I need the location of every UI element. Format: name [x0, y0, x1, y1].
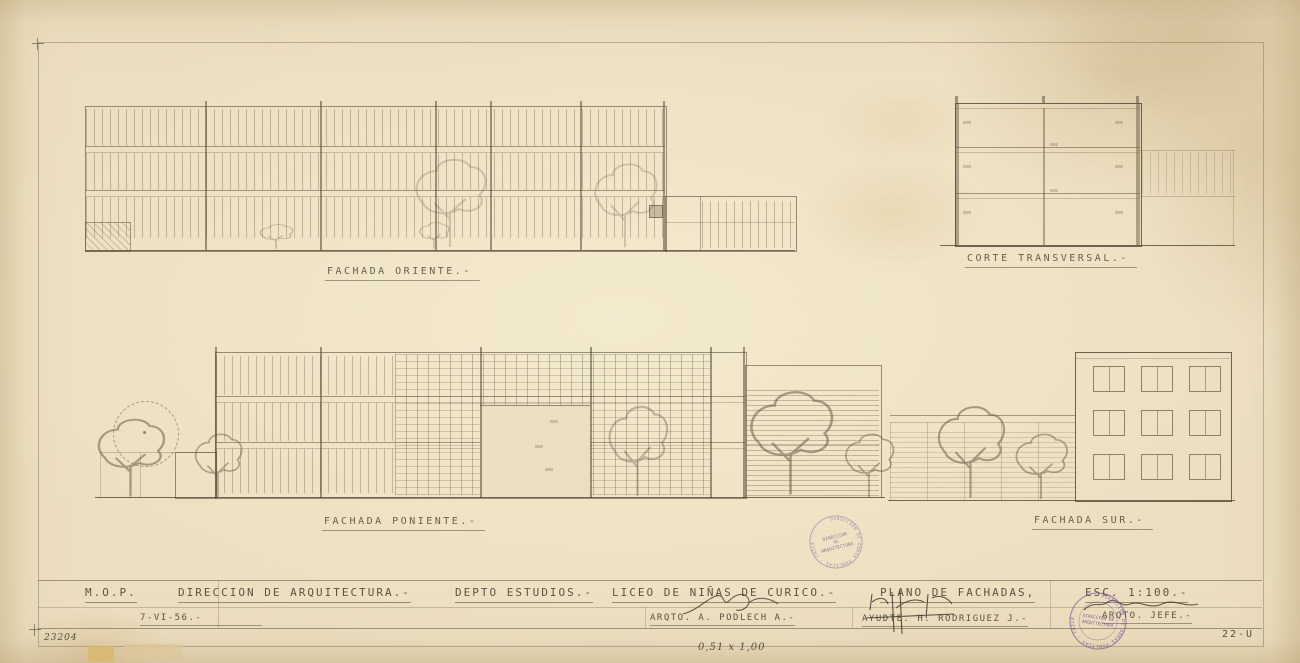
window-band: [86, 197, 664, 238]
dimension-note: [963, 121, 971, 124]
dimension-note: [550, 420, 558, 423]
dimension-note: [1115, 121, 1123, 124]
column-line: [580, 101, 582, 250]
architect-signature: [678, 590, 783, 620]
section-corte-transversal: [955, 103, 1140, 253]
dimension-note: [963, 211, 971, 214]
corte-label: CORTE TRANSVERSAL.-: [965, 253, 1137, 268]
oriente-label: FACHADA ORIENTE.-: [325, 266, 480, 281]
tree-sketch: [1008, 428, 1074, 502]
annex-post: [700, 196, 701, 250]
parapet-stub: [1136, 96, 1139, 103]
org-label: M.O.P.: [85, 586, 137, 603]
title-block-divider: [645, 607, 646, 628]
dimension-note: [1115, 165, 1123, 168]
floor-slab-line: [955, 193, 1140, 194]
tree-sketch: [738, 382, 843, 499]
tape-patch: [88, 646, 115, 663]
window-band: [86, 109, 664, 146]
ground-line: [940, 245, 1235, 246]
sheet-code-note: 22-U: [1222, 629, 1254, 640]
dimension-note: [1115, 211, 1123, 214]
column-line: [590, 347, 592, 498]
drawing-sheet: FACHADA ORIENTE.- CORTE TRANSVERSAL.-: [0, 0, 1300, 663]
adjacent-wing-line: [1140, 196, 1235, 197]
floor-slab-line: [955, 198, 1140, 199]
column-line: [320, 101, 322, 250]
floor-slab-line: [955, 147, 1140, 148]
stamp-graphic: DIRECCION DE OBRAS PUBLICAS · CHILE · DI…: [1054, 585, 1142, 658]
poniente-label: FACHADA PONIENTE.-: [322, 516, 485, 531]
sur-label: FACHADA SUR.-: [1032, 515, 1153, 530]
register-number-note: 23204: [44, 633, 78, 643]
adjacent-wing-edge: [1233, 150, 1234, 245]
wall-cut: [955, 103, 959, 245]
elevation-fachada-oriente: [85, 106, 795, 256]
tape-patch: [124, 644, 182, 661]
floor-line: [85, 190, 665, 191]
ink-stamp: DIRECCION DE OBRAS PUBLICAS · CHILE · DI…: [1054, 585, 1142, 658]
direction-label: DIRECCION DE ARQUITECTURA.-: [178, 586, 411, 603]
floor-line: [85, 146, 665, 147]
dimension-note: [1050, 189, 1058, 192]
column-line: [480, 347, 482, 498]
roof-slab-line: [955, 108, 1140, 109]
window: [1189, 410, 1221, 436]
tree-sketch: [88, 412, 173, 500]
title-block-divider: [852, 607, 853, 628]
window: [1189, 366, 1221, 392]
parapet-line: [1075, 358, 1230, 359]
tree-sketch: [928, 398, 1013, 502]
window-band: [86, 153, 664, 190]
sheet-size-note: 0,51 x 1,00: [698, 642, 766, 653]
corner-register-mark: [32, 38, 44, 50]
column-line: [710, 347, 712, 498]
annex-glazing: [702, 201, 793, 248]
interior-wall-cut: [1043, 108, 1045, 245]
entrance-opening: [480, 405, 590, 498]
parapet-stub: [1042, 96, 1045, 103]
window: [1093, 366, 1125, 392]
tree-sketch-overlay: [585, 156, 665, 251]
adjacent-wing-glazing: [1142, 152, 1233, 194]
dimension-note: [535, 445, 543, 448]
window-band: [216, 356, 395, 395]
column-line: [205, 101, 207, 250]
tree-sketch-overlay: [405, 151, 495, 251]
department-label: DEPTO ESTUDIOS.-: [455, 586, 593, 603]
window: [1141, 366, 1173, 392]
adjacent-wing-line: [1140, 150, 1235, 151]
title-block-rule: [38, 580, 1262, 581]
date-label: 7-VI-56.-: [140, 613, 262, 626]
window: [1189, 454, 1221, 480]
tree-sketch: [600, 398, 675, 500]
column-line: [320, 347, 322, 498]
dimension-note: [1050, 143, 1058, 146]
window: [1141, 454, 1173, 480]
tree-sketch: [188, 428, 248, 500]
dimension-note: [545, 468, 553, 471]
floor-slab-line: [955, 152, 1140, 153]
section-outline: [955, 103, 1142, 247]
parapet-stub: [955, 96, 958, 103]
window: [1093, 454, 1125, 480]
window: [1141, 410, 1173, 436]
window: [1093, 410, 1125, 436]
title-block-divider: [1050, 580, 1051, 628]
corner-register-mark: [29, 624, 41, 636]
planter-hatch: [85, 222, 131, 252]
dimension-note: [963, 165, 971, 168]
assistant-signature: [862, 588, 957, 636]
shrub-sketch: [255, 222, 297, 250]
wall-cut: [1136, 103, 1140, 245]
